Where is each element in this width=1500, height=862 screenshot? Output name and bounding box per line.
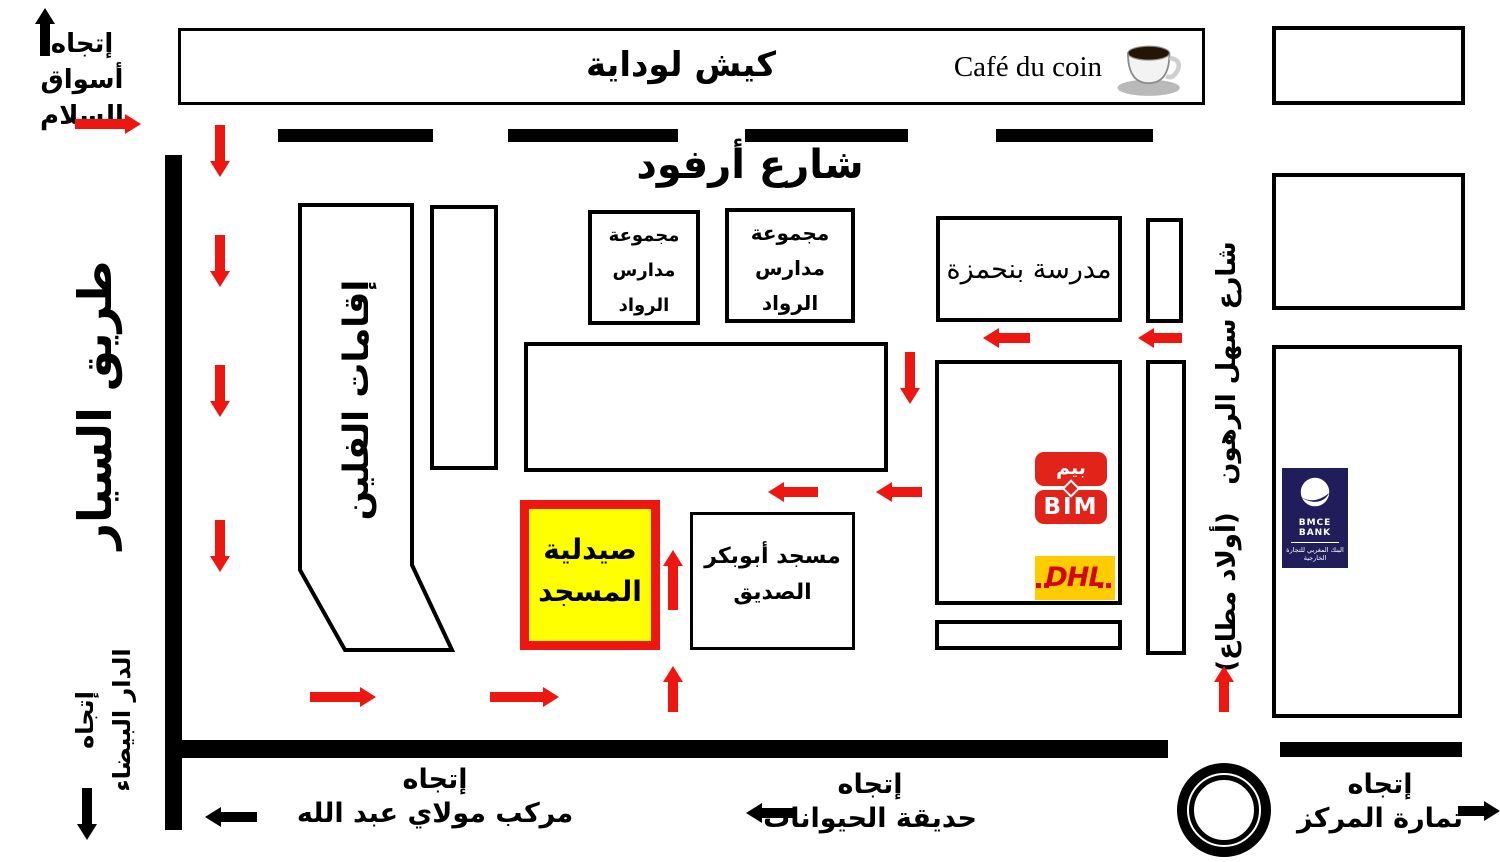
direction-zoo: إتجاه حديقة الحيوانات	[740, 768, 1000, 836]
road-dash	[996, 129, 1153, 142]
red-left-arrow	[1154, 333, 1182, 343]
bmce-rule	[1291, 542, 1339, 543]
dhl-dashes-icon	[1098, 583, 1114, 588]
residences-label: إقامات الفلين	[337, 280, 377, 521]
bmce-bank-logo: BMCE BANK البنك المغربي للتجارة الخارجية	[1282, 468, 1348, 568]
direction-line: إتجاه	[1290, 768, 1470, 802]
bmce-globe-icon	[1296, 474, 1334, 512]
benhamza-school-building: مدرسة بنحمزة	[936, 216, 1122, 322]
school-line: مجموعة	[592, 218, 696, 253]
dhl-dashes-icon	[1036, 583, 1052, 588]
bottom-road	[165, 740, 1168, 758]
mosque-line: مسجد أبوبكر	[693, 539, 852, 575]
road-dash	[508, 129, 678, 142]
school-line: مدارس	[729, 251, 851, 286]
building-block	[1146, 218, 1183, 323]
school-line: الرواد	[729, 286, 851, 321]
direction-line: تمارة المركز	[1290, 802, 1470, 836]
direction-line: مركب مولاي عبد الله	[270, 797, 600, 831]
building-block	[430, 205, 498, 470]
building-block	[1272, 26, 1465, 105]
red-right-arrow	[310, 692, 360, 702]
direction-temara: إتجاه تمارة المركز	[1290, 768, 1470, 836]
map-canvas: إتجاه أسواق السلام كيش لوداية Café du co…	[0, 0, 1500, 862]
direction-line: إتجاه	[2, 26, 162, 62]
benhamza-label: مدرسة بنحمزة	[946, 254, 1111, 285]
roundabout	[1177, 763, 1271, 857]
red-left-arrow	[892, 487, 922, 497]
red-left-arrow	[784, 487, 818, 497]
school-group-building: مجموعة مدارس الرواد	[588, 210, 700, 325]
building-block	[935, 620, 1122, 650]
school-group-building: مجموعة مدارس الرواد	[725, 208, 855, 323]
red-up-arrow	[1219, 682, 1229, 712]
school-line: مجموعة	[729, 216, 851, 251]
street-arfoud-label: شارع أرفود	[600, 142, 900, 188]
red-right-arrow	[75, 119, 125, 129]
black-down-arrow	[82, 788, 92, 824]
dhl-logo-text: DHL	[1035, 556, 1115, 600]
highway-road	[165, 155, 182, 830]
red-down-arrow	[215, 125, 225, 161]
roundabout-inner-ring	[1189, 775, 1259, 845]
black-right-arrow	[1458, 806, 1484, 816]
cafe-label: Café du coin	[954, 51, 1102, 84]
school-line: الرواد	[592, 288, 696, 323]
bottom-road-right	[1280, 742, 1462, 757]
kiosk-strip-building: كيش لوداية Café du coin	[178, 28, 1205, 105]
road-dash	[278, 129, 433, 142]
black-left-arrow	[221, 812, 257, 822]
direction-line: إتجاه	[67, 648, 104, 791]
pharmacy-building: صيدلية المسجد	[520, 500, 660, 650]
red-down-arrow	[215, 520, 225, 556]
building-block	[1146, 360, 1186, 655]
building-block	[524, 342, 888, 472]
red-down-arrow	[215, 235, 225, 271]
dhl-logo: DHL	[1035, 556, 1115, 600]
direction-line: إتجاه	[270, 763, 600, 797]
mosque-line: الصديق	[693, 575, 852, 611]
red-up-arrow	[668, 682, 678, 712]
bmce-name: BMCE BANK	[1282, 518, 1348, 538]
red-down-arrow	[215, 365, 225, 401]
red-left-arrow	[999, 333, 1030, 343]
coffee-cup-icon	[1114, 37, 1188, 97]
direction-moulay-abdallah: إتجاه مركب مولاي عبد الله	[270, 763, 600, 831]
direction-line: الدار البيضاء	[104, 648, 141, 791]
direction-casablanca: إتجاه الدار البيضاء	[67, 648, 141, 791]
pharmacy-line: المسجد	[529, 571, 651, 613]
red-up-arrow	[668, 566, 678, 610]
street-sahl-rhoune-label: شارع سهل الرهون	[1212, 241, 1242, 484]
red-right-arrow	[490, 692, 543, 702]
building-block	[1272, 173, 1465, 310]
road-dash	[745, 129, 908, 142]
street-oulad-mtaa-label: (أولاد مطاع)	[1212, 512, 1242, 672]
bim-logo: بيم BIM	[1035, 452, 1107, 524]
red-down-arrow	[905, 352, 915, 388]
school-line: مدارس	[592, 253, 696, 288]
street-highway-label: طريق السيار	[68, 260, 122, 549]
black-left-arrow	[762, 808, 796, 818]
kiosk-label: كيش لوداية	[511, 45, 851, 85]
bmce-arabic: البنك المغربي للتجارة الخارجية	[1282, 546, 1348, 562]
direction-line: إتجاه	[740, 768, 1000, 802]
pharmacy-line: صيدلية	[529, 529, 651, 571]
mosque-building: مسجد أبوبكر الصديق	[690, 512, 855, 650]
